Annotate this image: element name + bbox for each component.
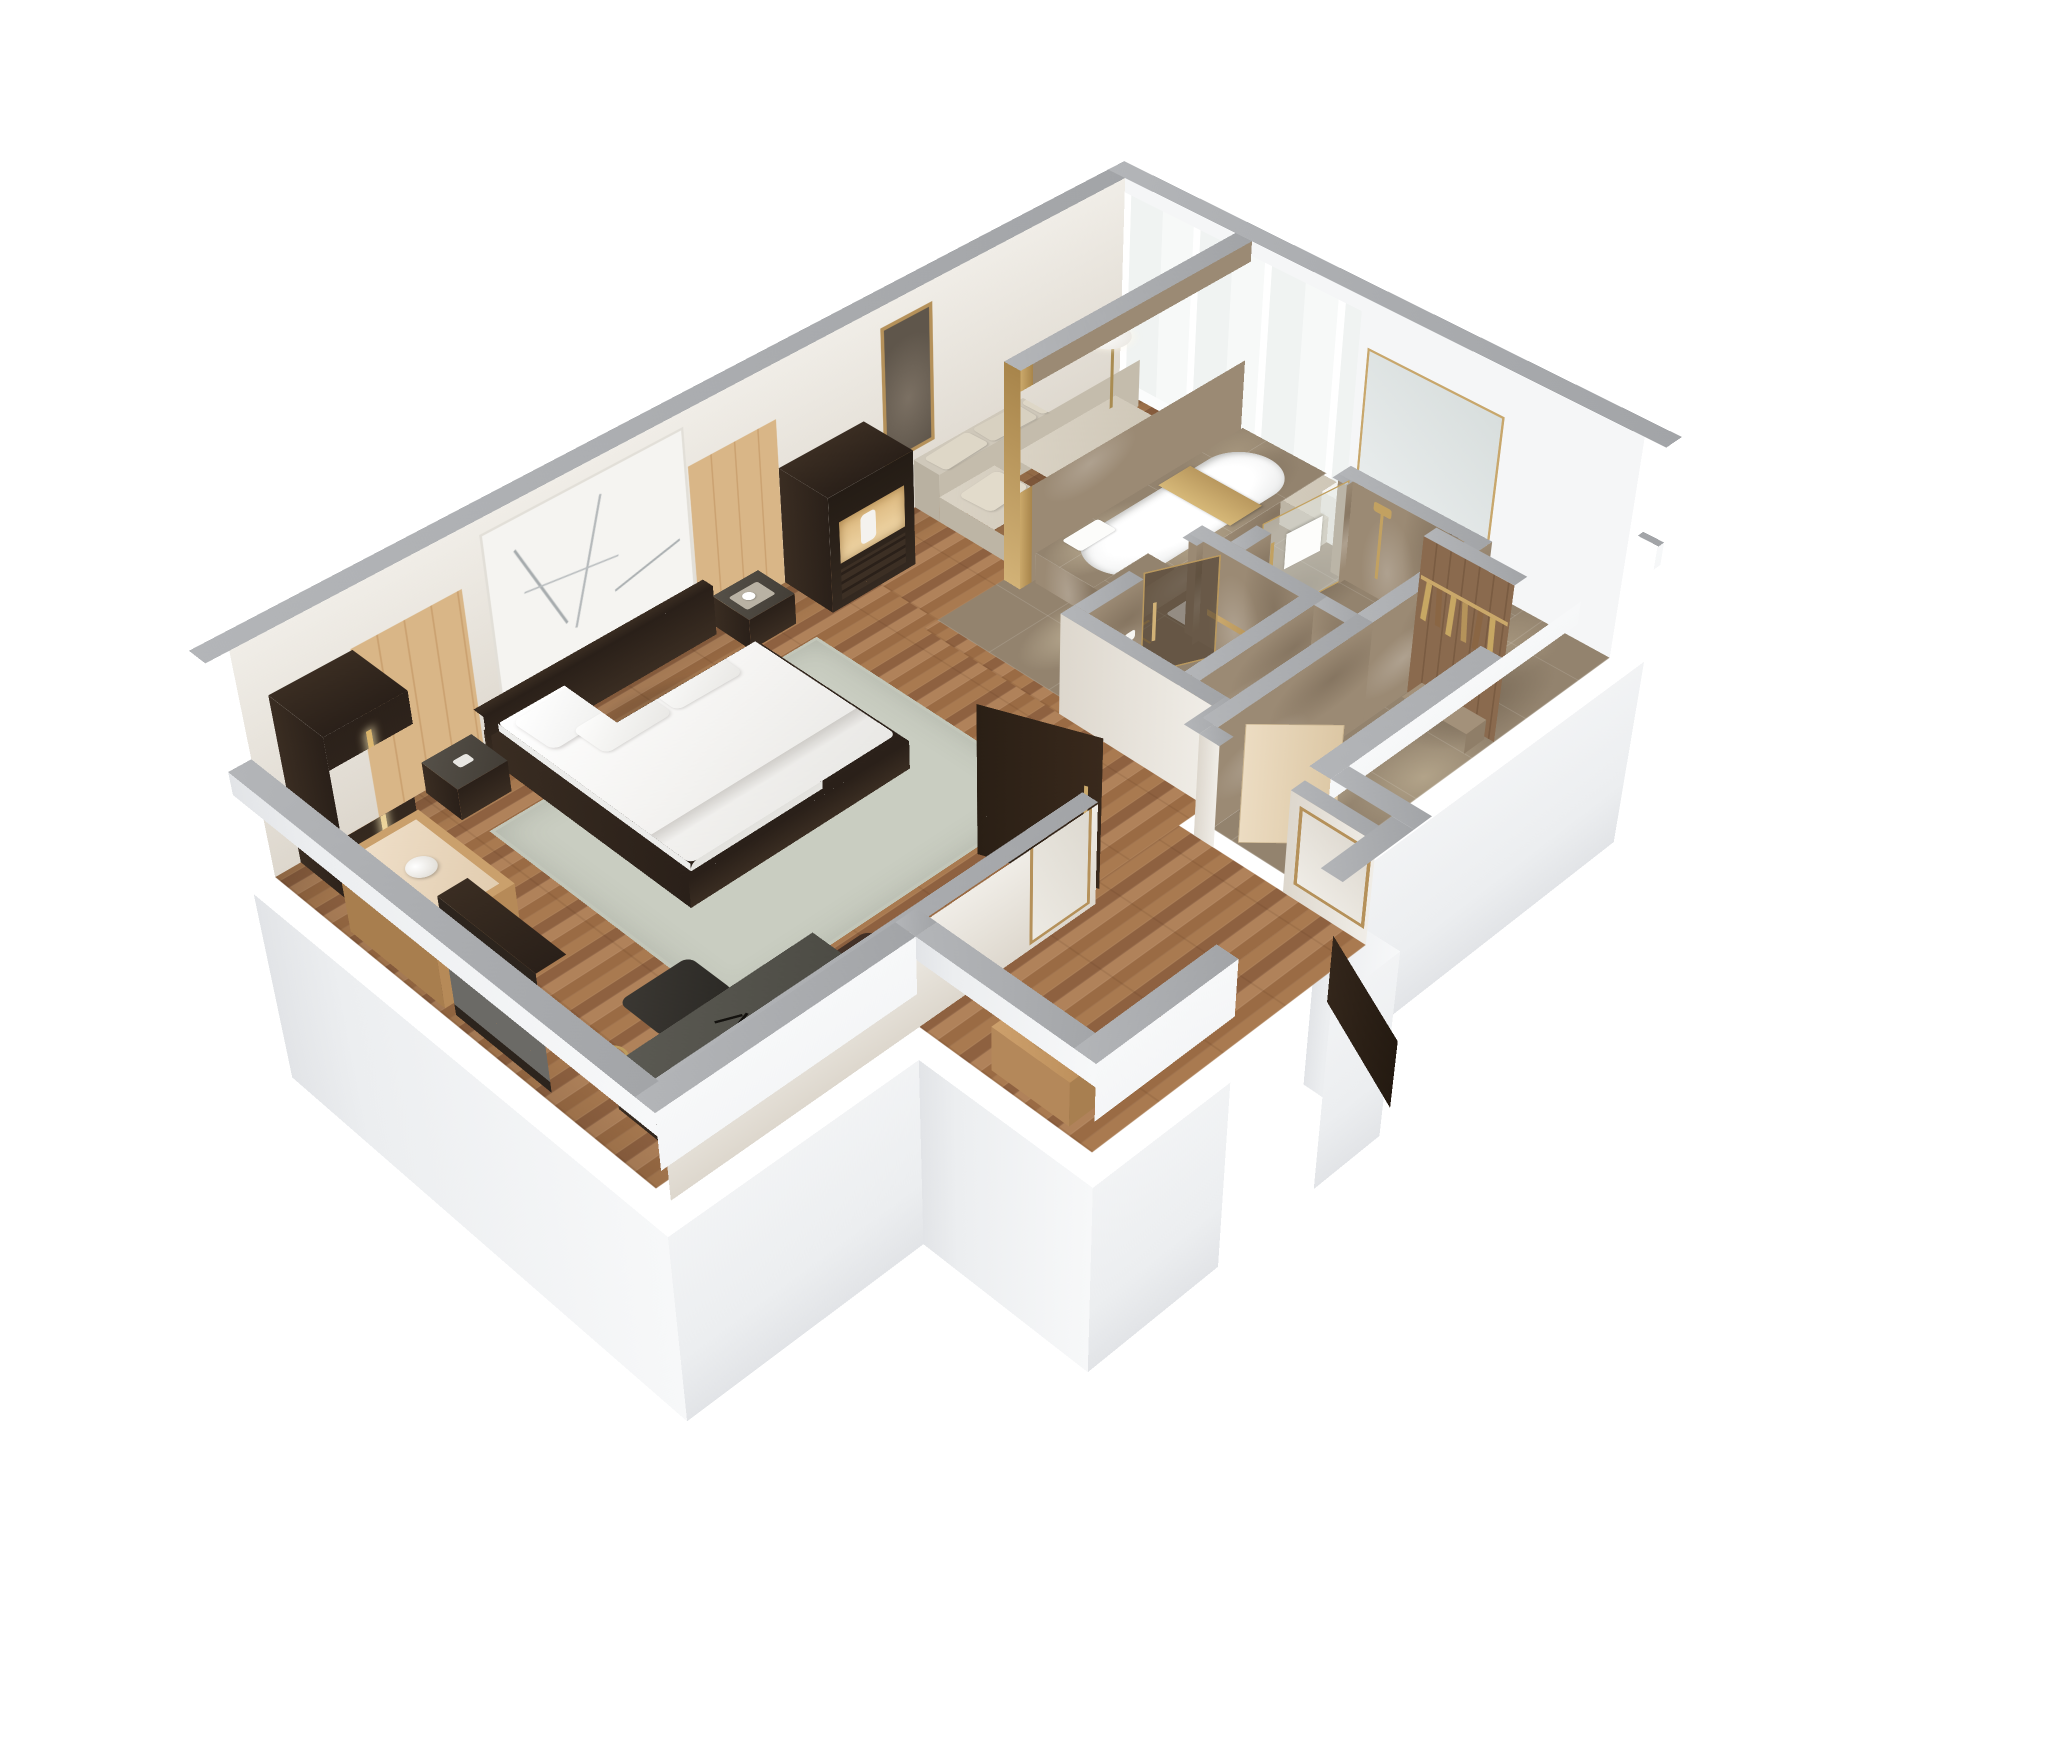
art-line xyxy=(575,494,601,628)
art-line xyxy=(615,538,680,591)
wc-door-handle xyxy=(1152,602,1157,641)
floorplan xyxy=(237,371,1723,1376)
hanger xyxy=(1461,602,1468,643)
wall-speaker xyxy=(1072,405,1090,445)
art-line xyxy=(524,554,618,593)
door-handle xyxy=(1387,972,1394,1018)
art-line xyxy=(513,549,568,623)
hanger xyxy=(1435,588,1443,628)
shower-fixture xyxy=(1375,508,1385,579)
shower-door-towel xyxy=(1284,516,1323,570)
partition-brass-end xyxy=(1004,362,1021,590)
partition-brass-band xyxy=(1020,364,1033,589)
hanger xyxy=(1445,595,1456,637)
nightstand-item xyxy=(452,753,475,768)
hanger xyxy=(1420,582,1432,622)
